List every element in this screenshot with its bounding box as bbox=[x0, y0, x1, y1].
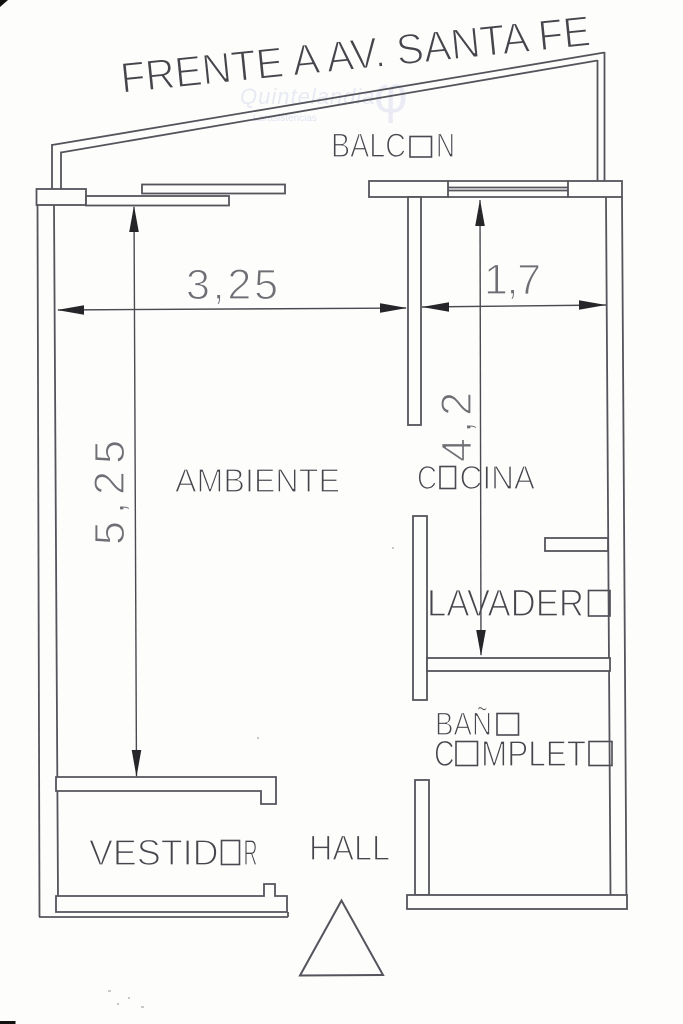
svg-text:3,25: 3,25 bbox=[186, 261, 278, 309]
svg-text:MPLET: MPLET bbox=[481, 733, 586, 774]
svg-text:4,2: 4,2 bbox=[433, 392, 481, 462]
svg-text:5,25: 5,25 bbox=[86, 440, 134, 545]
svg-text:VESTID: VESTID bbox=[89, 832, 219, 873]
svg-text:C: C bbox=[434, 733, 455, 774]
svg-text:HALL: HALL bbox=[309, 829, 390, 868]
svg-text:R: R bbox=[244, 832, 258, 873]
svg-text:AMBIENTE: AMBIENTE bbox=[175, 462, 340, 499]
svg-text:1,7: 1,7 bbox=[484, 256, 541, 304]
svg-text:N: N bbox=[436, 127, 455, 165]
svg-text:CINA: CINA bbox=[460, 459, 536, 496]
svg-text:LAVADER: LAVADER bbox=[427, 583, 584, 625]
svg-text:BALC: BALC bbox=[331, 127, 406, 165]
svg-text:C: C bbox=[417, 459, 437, 496]
